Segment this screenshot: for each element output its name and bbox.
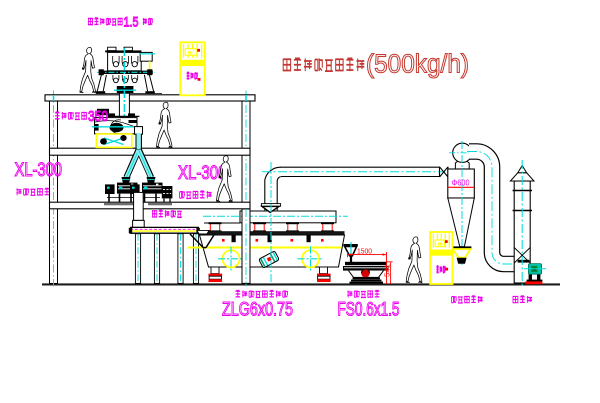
svg-text:XL-300: XL-300 xyxy=(178,163,227,184)
svg-text:FS0.6x1.5: FS0.6x1.5 xyxy=(338,300,400,321)
svg-text:XL-300: XL-300 xyxy=(15,160,63,181)
svg-text:Φ600: Φ600 xyxy=(452,178,470,187)
svg-text:350: 350 xyxy=(88,109,108,125)
svg-text:ZLG6x0.75: ZLG6x0.75 xyxy=(222,300,293,321)
svg-text:541: 541 xyxy=(385,264,392,277)
svg-text:(500kg/h): (500kg/h) xyxy=(366,51,469,79)
svg-text:1500: 1500 xyxy=(357,249,372,256)
svg-text:1.5: 1.5 xyxy=(124,13,139,29)
